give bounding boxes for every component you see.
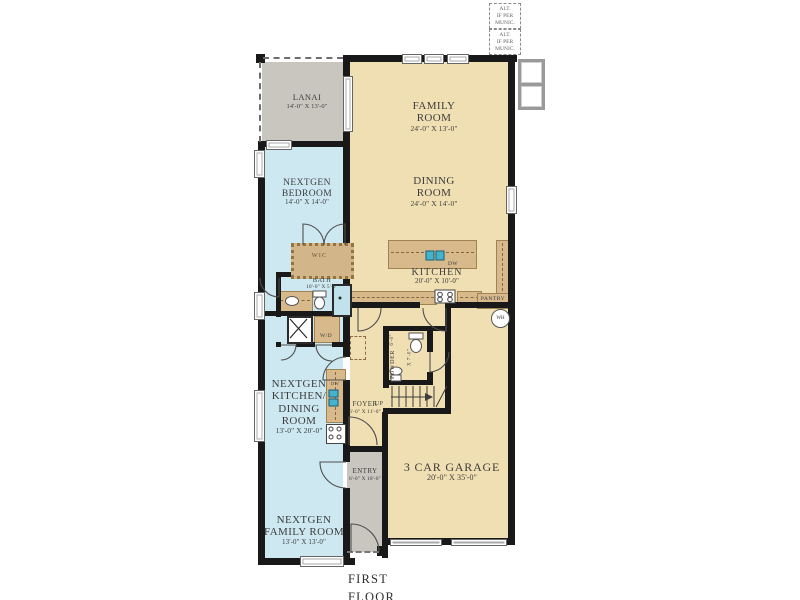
room-dims: 13'-0" X 20'-0" [259, 427, 339, 435]
caption-text: FIRST FLOOR [348, 572, 395, 600]
wall [276, 342, 281, 347]
garage-label: 3 CAR GARAGE 20'-0" X 35'-0" [392, 461, 512, 483]
wall [427, 326, 433, 352]
equipment-pad-2 [518, 83, 545, 110]
alt-note-1: ALT. IF PER MUNIC. [489, 3, 521, 29]
pantry-label: PANTRY [477, 296, 509, 302]
wall [445, 302, 451, 412]
window [300, 556, 344, 567]
wall [332, 342, 343, 347]
kitchen-label: KITCHEN 20'-0" X 10'-0" [387, 267, 487, 286]
room-dims: 24'-0" X 13'-0" [399, 125, 469, 133]
window [424, 54, 444, 64]
room-name: FOYER [346, 401, 384, 409]
nextgen-bedroom-label: NEXTGEN BEDROOM 14'-0" X 14'-0" [267, 178, 347, 207]
nextgen-dishwasher-label: DW [326, 372, 344, 390]
room-dims: 14'-0" X 14'-0" [267, 199, 347, 207]
entry-porch-edge [347, 551, 379, 553]
water-heater: WH [491, 309, 510, 328]
plan-caption: FIRST FLOOR [348, 570, 438, 600]
room-name: NEXTGEN FAMILY ROOM [264, 514, 344, 539]
room-name-line: KITCHEN/ [259, 390, 339, 402]
room-name: BATH [292, 277, 352, 284]
window [402, 54, 422, 64]
wall [382, 412, 388, 558]
window [266, 140, 292, 150]
room-name: PANTRY [477, 296, 509, 302]
alt-note-line: MUNIC. [495, 46, 515, 52]
window [254, 292, 265, 320]
room-name: WIC [291, 252, 348, 259]
room-name: POWDER [390, 351, 396, 380]
wall [447, 302, 515, 308]
washer-dryer-label: W/D [314, 324, 338, 342]
alt-note-2: ALT. IF PER MUNIC. [489, 29, 521, 55]
entry-label: ENTRY 6'-0" X 18'-0" [345, 468, 385, 482]
wd-text: W/D [320, 333, 332, 339]
dishwasher-label: DW [445, 252, 461, 270]
garage-door-panel [451, 539, 507, 546]
nextgen-floor [265, 147, 343, 560]
room-dims: 20'-0" X 35'-0" [392, 474, 512, 483]
window [254, 150, 265, 178]
lanai-screen-edge [263, 57, 343, 59]
wall [258, 141, 265, 565]
equipment-pad-1 [518, 59, 545, 86]
room-dims: 24'-0" X 14'-0" [399, 200, 469, 208]
room-dims: 20'-0" X 10'-0" [387, 278, 487, 286]
room-dims: 6'-0" X 11'-0" [346, 409, 384, 415]
room-dims: 6'-0" X 18'-0" [345, 476, 385, 482]
alt-note-line: IF PER [497, 13, 513, 19]
room-name: 3 CAR GARAGE [392, 461, 512, 474]
wic-closet [291, 243, 354, 279]
bath-vanity [277, 291, 313, 313]
alt-note-line: ALT. [499, 6, 510, 12]
dw-text: DW [331, 381, 339, 386]
floor-plan: ALT. IF PER MUNIC. ALT. IF PER MUNIC. [0, 0, 800, 600]
bath-label: BATH 10'-0" X 5'-0" [292, 277, 352, 290]
foyer-label: FOYER 6'-0" X 11'-0" [346, 401, 384, 415]
wall [343, 446, 388, 452]
wic-label: WIC [291, 252, 348, 259]
room-name: ENTRY [345, 468, 385, 476]
alt-note-line: ALT. [499, 32, 510, 38]
garage-door-panel [390, 539, 442, 546]
lanai-screen-edge [259, 62, 261, 142]
room-name: NEXTGEN BEDROOM [267, 178, 347, 199]
lanai-label: LANAI 14'-0" X 13'-0" [267, 93, 347, 110]
room-dims: 10'-0" X 5'-0" [292, 284, 352, 290]
room-name: DINING ROOM [399, 175, 469, 200]
alt-note-line: MUNIC. [495, 20, 515, 26]
room-name-line: DINING [259, 403, 339, 415]
foyer-closet-dashed [350, 336, 366, 360]
powder-label: POWDER 6'-0" X 7'-0" [384, 332, 400, 382]
room-name: FAMILY ROOM [399, 100, 469, 125]
room-name: LANAI [267, 93, 347, 103]
nextgen-family-room-label: NEXTGEN FAMILY ROOM 13'-0" X 13'-0" [264, 514, 344, 546]
kitchen-island [388, 240, 477, 269]
alt-note-line: IF PER [497, 39, 513, 45]
dw-text: DW [448, 261, 458, 267]
room-dims: 14'-0" X 13'-0" [267, 103, 347, 110]
wall [383, 326, 450, 331]
wall [383, 408, 451, 414]
dining-room-label: DINING ROOM 24'-0" X 14'-0" [399, 175, 469, 208]
room-dims: 13'-0" X 13'-0" [264, 539, 344, 547]
window [447, 54, 469, 64]
shower-stall [287, 316, 313, 344]
window [506, 186, 517, 214]
family-room-label: FAMILY ROOM 24'-0" X 13'-0" [399, 100, 469, 133]
water-heater-label: WH [496, 316, 504, 321]
wall [347, 302, 420, 308]
